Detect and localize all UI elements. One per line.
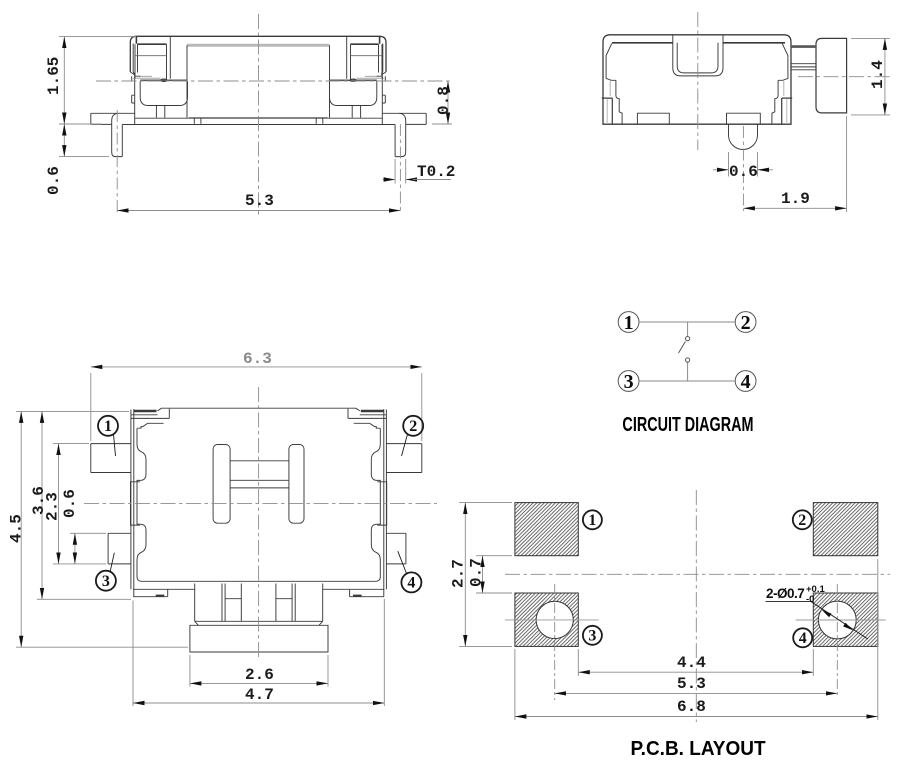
svg-text:1: 1 (624, 312, 634, 334)
svg-text:6.8: 6.8 (677, 698, 706, 716)
svg-text:0.7: 0.7 (468, 558, 486, 587)
svg-text:1: 1 (104, 418, 112, 435)
svg-text:0.6: 0.6 (45, 166, 63, 195)
svg-text:5.3: 5.3 (677, 675, 706, 693)
svg-text:0.8: 0.8 (435, 86, 453, 115)
svg-text:2.6: 2.6 (245, 666, 274, 684)
svg-text:1.9: 1.9 (781, 190, 810, 208)
svg-text:4: 4 (407, 575, 415, 592)
svg-text:2: 2 (409, 418, 417, 435)
svg-text:P.C.B. LAYOUT: P.C.B. LAYOUT (630, 738, 765, 761)
svg-text:2: 2 (798, 512, 806, 529)
svg-text:2: 2 (741, 312, 751, 334)
svg-text:-0: -0 (806, 594, 814, 605)
svg-text:2-Ø0.7: 2-Ø0.7 (766, 586, 804, 601)
svg-text:2.3: 2.3 (44, 492, 62, 521)
svg-text:0.6: 0.6 (61, 489, 79, 518)
svg-text:3: 3 (588, 628, 596, 645)
svg-text:4.5: 4.5 (8, 514, 26, 543)
svg-text:1: 1 (588, 512, 596, 529)
svg-text:4.7: 4.7 (245, 686, 274, 704)
svg-text:CIRCUIT DIAGRAM: CIRCUIT DIAGRAM (622, 413, 753, 436)
svg-text:4: 4 (741, 371, 751, 393)
svg-text:3: 3 (624, 371, 634, 393)
svg-text:5.3: 5.3 (245, 192, 274, 210)
svg-text:4: 4 (799, 630, 807, 647)
svg-text:6.3: 6.3 (243, 350, 272, 368)
svg-text:T0.2: T0.2 (417, 163, 455, 181)
svg-text:1.65: 1.65 (45, 57, 63, 95)
svg-text:4.4: 4.4 (677, 654, 706, 672)
svg-text:2.7: 2.7 (450, 559, 468, 588)
svg-text:3: 3 (102, 573, 110, 590)
svg-text:1.4: 1.4 (869, 60, 887, 89)
svg-text:0.6: 0.6 (729, 163, 758, 181)
